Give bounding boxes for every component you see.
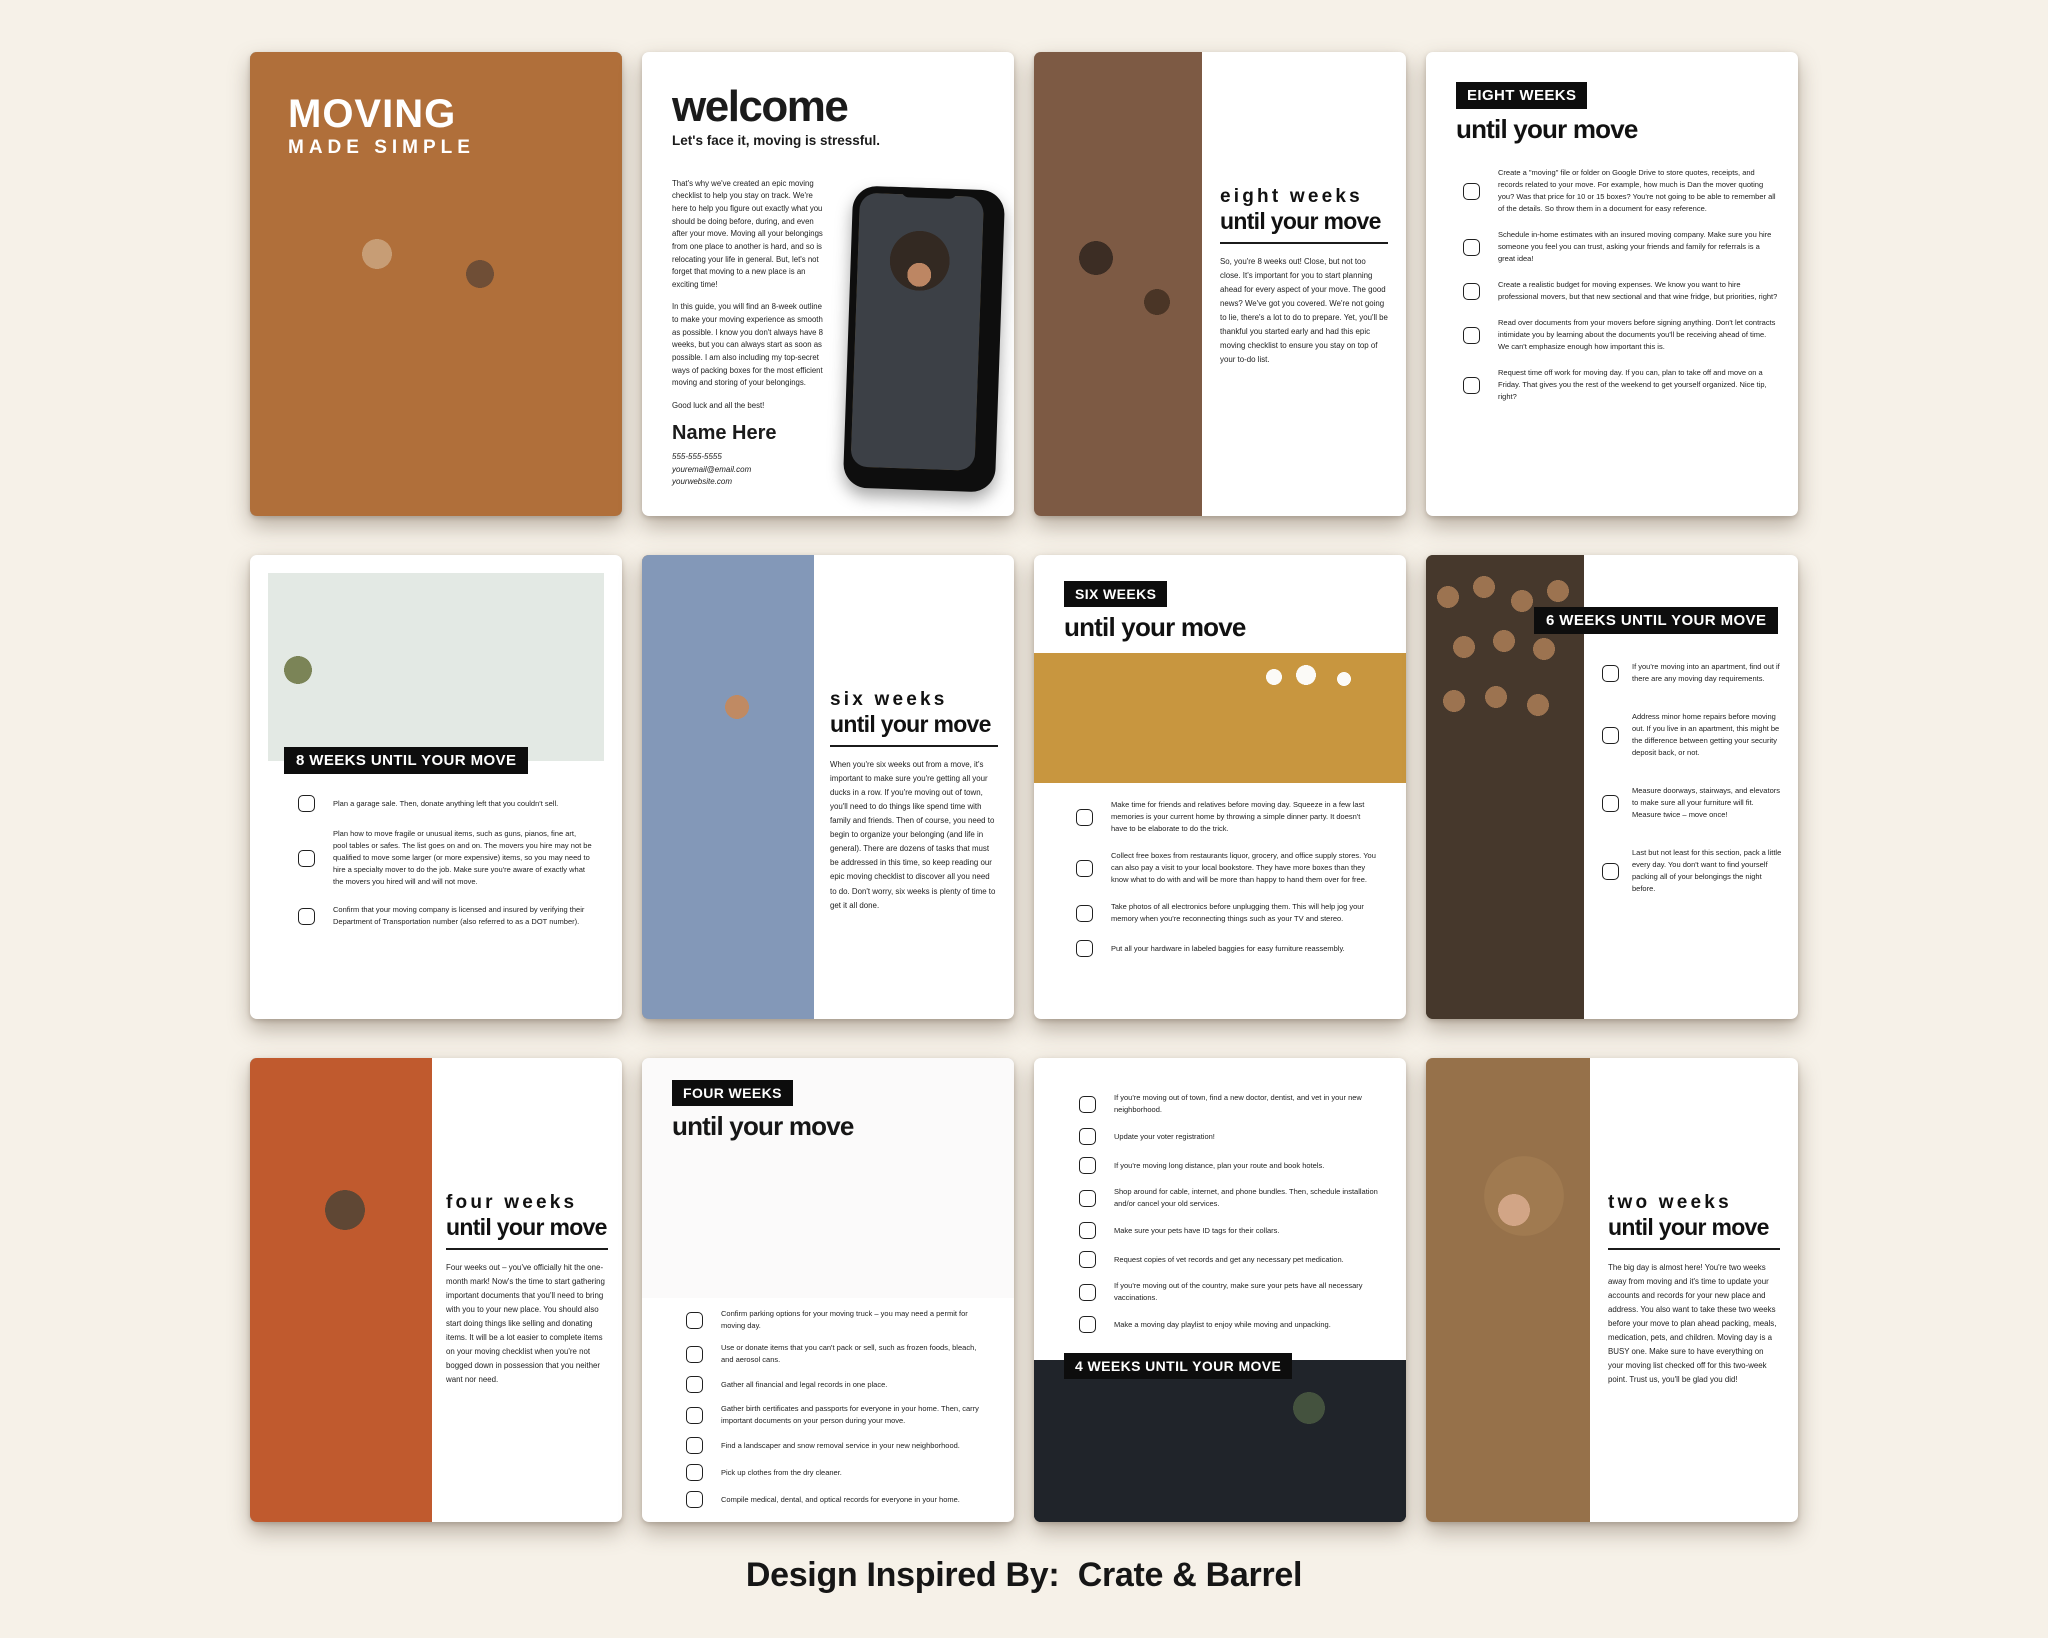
checklist: If you're moving into an apartment, find… [1602, 661, 1784, 895]
page-eight-weeks-checklist: EIGHT WEEKS until your move Create a "mo… [1426, 52, 1798, 516]
checklist-header: SIX WEEKS until your move [1034, 555, 1406, 641]
heading-rule [830, 745, 998, 747]
cover-title-block: MOVING MADE SIMPLE [288, 94, 475, 159]
welcome-paragraph: That's why we've created an epic moving … [672, 178, 824, 292]
eight-weeks-intro-column: eight weeks until your move So, you're 8… [1202, 52, 1406, 516]
checklist-item: Use or donate items that you can't pack … [686, 1342, 990, 1366]
four-weeks-intro-column: four weeks until your move Four weeks ou… [432, 1058, 622, 1522]
checklist: Confirm parking options for your moving … [686, 1308, 990, 1508]
checklist-item: Confirm parking options for your moving … [686, 1308, 990, 1332]
checkbox-icon[interactable] [1602, 665, 1619, 682]
checkbox-icon[interactable] [1076, 809, 1093, 826]
checklist-item: Make a moving day playlist to enjoy whil… [1079, 1316, 1382, 1333]
checklist-item: Read over documents from your movers bef… [1463, 317, 1778, 353]
heading-line2: until your move [446, 1215, 608, 1239]
intro-body: The big day is almost here! You're two w… [1608, 1261, 1780, 1388]
checkbox-icon[interactable] [1463, 377, 1480, 394]
checklist-item: Measure doorways, stairways, and elevato… [1602, 785, 1784, 821]
checklist-heading: until your move [1456, 116, 1798, 143]
checklist-item: If you're moving into an apartment, find… [1602, 661, 1784, 685]
page-four-weeks-tasks: If you're moving out of town, find a new… [1034, 1058, 1406, 1522]
checkbox-icon[interactable] [298, 908, 315, 925]
section-heading: eight weeks until your move So, you're 8… [1220, 186, 1388, 367]
checklist-header: EIGHT WEEKS until your move [1426, 52, 1798, 143]
checklist-item: Last but not least for this section, pac… [1602, 847, 1784, 895]
checklist-item: Shop around for cable, internet, and pho… [1079, 1186, 1382, 1210]
checkbox-icon[interactable] [1463, 183, 1480, 200]
photo-woman-holding-box [1426, 1058, 1590, 1522]
checkbox-icon[interactable] [1463, 283, 1480, 300]
cover-title: MOVING [288, 94, 475, 134]
heading-rule [1220, 242, 1388, 244]
checklist-item: Compile medical, dental, and optical rec… [686, 1491, 990, 1508]
heading-line1: six weeks [830, 689, 998, 711]
photo-packing-clothes-box [642, 555, 814, 1019]
section-badge: 8 WEEKS UNTIL YOUR MOVE [284, 747, 528, 774]
checklist: Make time for friends and relatives befo… [1076, 799, 1378, 957]
page-welcome: welcome Let's face it, moving is stressf… [642, 52, 1014, 516]
checkbox-icon[interactable] [1076, 940, 1093, 957]
welcome-paragraph: In this guide, you will find an 8-week o… [672, 301, 824, 389]
checklist-item: Request copies of vet records and get an… [1079, 1251, 1382, 1268]
checklist: Plan a garage sale. Then, donate anythin… [298, 795, 592, 928]
checkbox-icon[interactable] [686, 1312, 703, 1329]
photo-kitchen-shelves [1034, 653, 1406, 783]
section-heading: six weeks until your move When you're si… [830, 689, 998, 913]
heading-line1: four weeks [446, 1192, 608, 1214]
two-weeks-intro-column: two weeks until your move The big day is… [1590, 1058, 1798, 1522]
photo-room-ladder-box [1034, 1360, 1406, 1522]
page-cover: MOVING MADE SIMPLE [250, 52, 622, 516]
checklist-item: Create a realistic budget for moving exp… [1463, 279, 1778, 303]
phone-mockup [843, 185, 1005, 492]
photo-bedroom-window: FOUR WEEKS until your move [642, 1058, 1014, 1298]
checkbox-icon[interactable] [1076, 860, 1093, 877]
intro-body: Four weeks out – you've officially hit t… [446, 1261, 608, 1388]
checklist-item: Request time off work for moving day. If… [1463, 367, 1778, 403]
phone-notch [901, 187, 957, 199]
checkbox-icon[interactable] [1602, 727, 1619, 744]
section-badge: FOUR WEEKS [672, 1080, 793, 1106]
page-six-weeks-tasks: 6 WEEKS UNTIL YOUR MOVE If you're moving… [1426, 555, 1798, 1019]
section-heading: four weeks until your move Four weeks ou… [446, 1192, 608, 1388]
cover-subtitle: MADE SIMPLE [288, 137, 475, 159]
section-badge: 4 WEEKS UNTIL YOUR MOVE [1064, 1353, 1292, 1379]
checkbox-icon[interactable] [1079, 1128, 1096, 1145]
caption: Design Inspired By: Crate & Barrel [0, 1556, 2048, 1595]
checklist-item: If you're moving out of town, find a new… [1079, 1092, 1382, 1116]
checklist-item: Find a landscaper and snow removal servi… [686, 1437, 990, 1454]
checkbox-icon[interactable] [1079, 1284, 1096, 1301]
checkbox-icon[interactable] [1602, 863, 1619, 880]
photo-woman-shelving-books [250, 1058, 432, 1522]
section-badge: EIGHT WEEKS [1456, 82, 1587, 109]
checklist-heading: until your move [1064, 614, 1406, 641]
welcome-paragraphs: That's why we've created an epic moving … [672, 178, 824, 413]
checklist-item: Take photos of all electronics before un… [1076, 901, 1378, 925]
checkbox-icon[interactable] [686, 1376, 703, 1393]
checkbox-icon[interactable] [1079, 1222, 1096, 1239]
checklist-item: Address minor home repairs before moving… [1602, 711, 1784, 759]
checklist-header: FOUR WEEKS until your move [672, 1080, 854, 1140]
checklist-heading: until your move [672, 1113, 854, 1140]
heading-rule [1608, 1248, 1780, 1250]
section-badge: SIX WEEKS [1064, 581, 1167, 607]
heading-line1: two weeks [1608, 1192, 1780, 1214]
welcome-subtitle: Let's face it, moving is stressful. [672, 133, 984, 148]
checklist-item: If you're moving out of the country, mak… [1079, 1280, 1382, 1304]
section-heading: two weeks until your move The big day is… [1608, 1192, 1780, 1388]
checkbox-icon[interactable] [1079, 1096, 1096, 1113]
checkbox-icon[interactable] [1079, 1251, 1096, 1268]
checkbox-icon[interactable] [686, 1464, 703, 1481]
checkbox-icon[interactable] [1079, 1157, 1096, 1174]
heading-line2: until your move [830, 712, 998, 736]
checkbox-icon[interactable] [1463, 239, 1480, 256]
checkbox-icon[interactable] [298, 795, 315, 812]
checklist-item: Create a "moving" file or folder on Goog… [1463, 167, 1778, 215]
checklist-item: Update your voter registration! [1079, 1128, 1382, 1145]
page-eight-weeks-tasks: 8 WEEKS UNTIL YOUR MOVE Plan a garage sa… [250, 555, 622, 1019]
page-four-weeks-intro: four weeks until your move Four weeks ou… [250, 1058, 622, 1522]
checklist-item: Make sure your pets have ID tags for the… [1079, 1222, 1382, 1239]
checklist-item: Put all your hardware in labeled baggies… [1076, 940, 1378, 957]
heading-rule [446, 1248, 608, 1250]
welcome-title: welcome [672, 86, 984, 128]
checkbox-icon[interactable] [1079, 1316, 1096, 1333]
checkbox-icon[interactable] [686, 1491, 703, 1508]
six-weeks-intro-column: six weeks until your move When you're si… [814, 555, 1014, 1019]
heading-line1: eight weeks [1220, 186, 1388, 208]
checkbox-icon[interactable] [1602, 795, 1619, 812]
checklist-item: Collect free boxes from restaurants liqu… [1076, 850, 1378, 886]
checklist-item: Plan a garage sale. Then, donate anythin… [298, 795, 592, 812]
welcome-paragraph: Good luck and all the best! [672, 400, 824, 413]
checklist-item: Confirm that your moving company is lice… [298, 904, 592, 928]
checkbox-icon[interactable] [1076, 905, 1093, 922]
checkbox-icon[interactable] [686, 1407, 703, 1424]
checklist-item: Plan how to move fragile or unusual item… [298, 828, 592, 888]
page-six-weeks-checklist: SIX WEEKS until your move Make time for … [1034, 555, 1406, 1019]
photo-bright-dining-room: 8 WEEKS UNTIL YOUR MOVE [268, 573, 604, 761]
checklist-item: If you're moving long distance, plan you… [1079, 1157, 1382, 1174]
checkbox-icon[interactable] [686, 1437, 703, 1454]
page-two-weeks-intro: two weeks until your move The big day is… [1426, 1058, 1798, 1522]
checklist: If you're moving out of town, find a new… [1079, 1092, 1382, 1333]
intro-body: So, you're 8 weeks out! Close, but not t… [1220, 255, 1388, 368]
checklist-item: Schedule in-home estimates with an insur… [1463, 229, 1778, 265]
section-badge: 6 WEEKS UNTIL YOUR MOVE [1534, 607, 1778, 634]
checklist-item: Make time for friends and relatives befo… [1076, 799, 1378, 835]
checkbox-icon[interactable] [298, 850, 315, 867]
page-eight-weeks-intro: eight weeks until your move So, you're 8… [1034, 52, 1406, 516]
page-six-weeks-intro: six weeks until your move When you're si… [642, 555, 1014, 1019]
checklist-item: Gather all financial and legal records i… [686, 1376, 990, 1393]
photo-woman-with-phone [851, 193, 984, 471]
checkbox-icon[interactable] [1079, 1190, 1096, 1207]
intro-body: When you're six weeks out from a move, i… [830, 758, 998, 913]
checklist-item: Gather birth certificates and passports … [686, 1403, 990, 1427]
checkbox-icon[interactable] [686, 1346, 703, 1363]
photo-mother-child-packing-box [1034, 52, 1202, 516]
pages-grid: MOVING MADE SIMPLE welcome Let's face it… [0, 0, 2048, 1522]
heading-line2: until your move [1220, 209, 1388, 233]
page-four-weeks-checklist: FOUR WEEKS until your move Confirm parki… [642, 1058, 1014, 1522]
checklist-item: Pick up clothes from the dry cleaner. [686, 1464, 990, 1481]
checklist: Create a "moving" file or folder on Goog… [1463, 167, 1778, 403]
checkbox-icon[interactable] [1463, 327, 1480, 344]
heading-line2: until your move [1608, 1215, 1780, 1239]
mockup-board: MOVING MADE SIMPLE welcome Let's face it… [0, 0, 2048, 1638]
